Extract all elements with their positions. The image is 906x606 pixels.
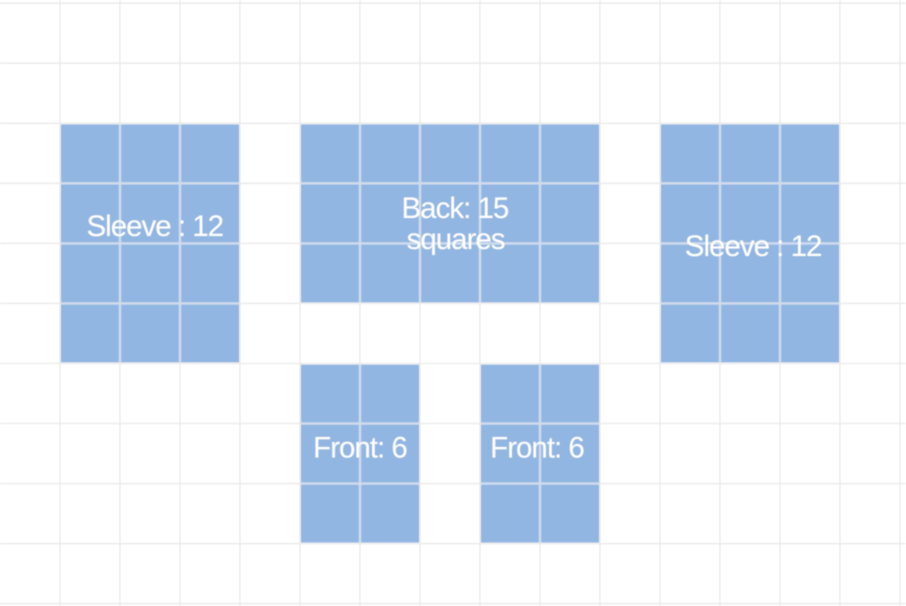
svg-text:Sleeve : 12: Sleeve : 12 [86, 210, 223, 243]
svg-text:Front: 6: Front: 6 [490, 432, 584, 465]
svg-text:Sleeve : 12: Sleeve : 12 [685, 230, 822, 263]
svg-text:Front: 6: Front: 6 [313, 432, 407, 465]
svg-text:squares: squares [407, 223, 505, 256]
svg-text:Back: 15: Back: 15 [402, 192, 509, 225]
